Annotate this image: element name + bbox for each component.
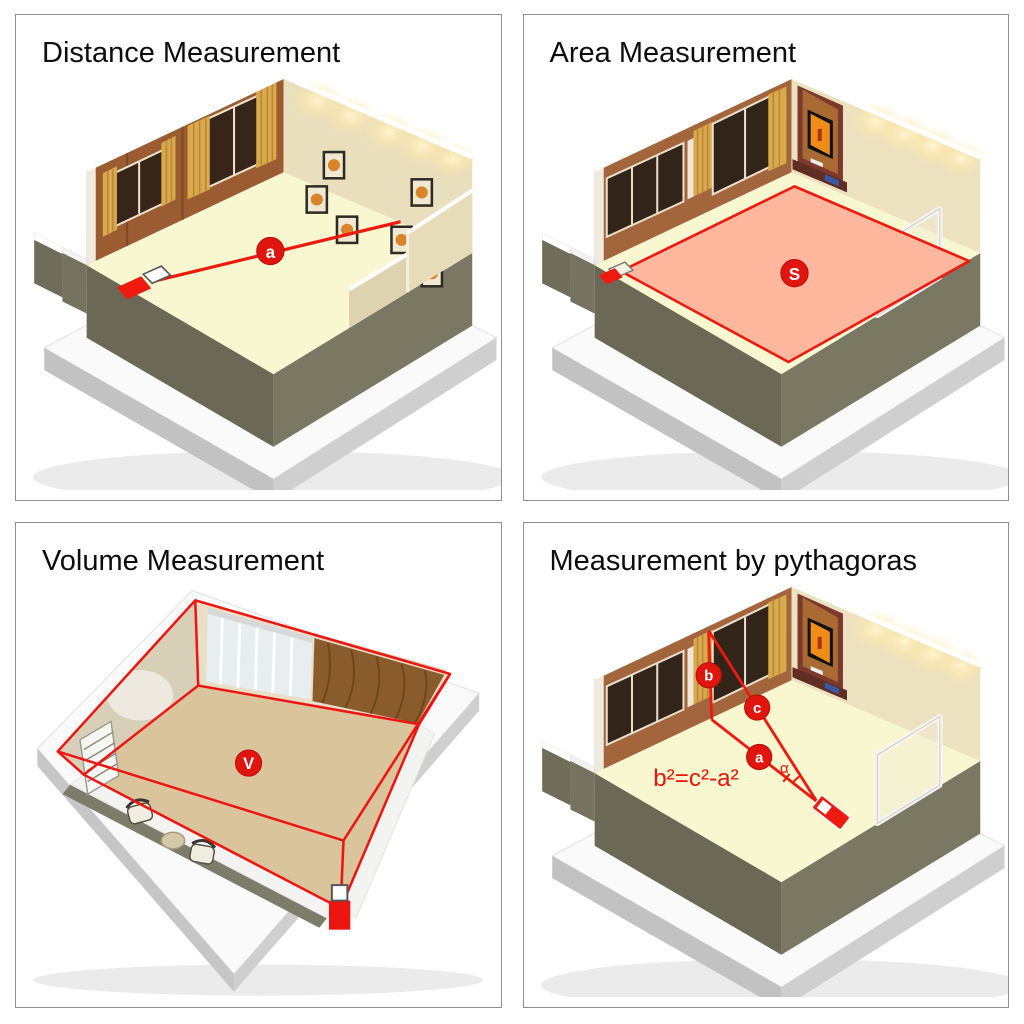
panel-title-distance: Distance Measurement [16, 15, 501, 71]
angle-label: α [780, 760, 789, 777]
curtain [768, 87, 786, 172]
formula-text: b²=c²-a² [653, 765, 738, 792]
panel-title-pythagoras: Measurement by pythagoras [524, 523, 1009, 579]
curtain [161, 136, 175, 207]
ottoman [161, 832, 184, 848]
curtain [256, 82, 276, 169]
panel-area: Area Measurement [523, 14, 1010, 501]
panel-volume: Volume Measurement [15, 522, 502, 1009]
panel-title-area: Area Measurement [524, 15, 1009, 71]
panel-title-volume: Volume Measurement [16, 523, 501, 579]
marker-letter-v: V [243, 755, 254, 773]
laser-device-icon [329, 885, 350, 930]
room-illustration-volume: V [16, 579, 501, 998]
panel-pythagoras: Measurement by pythagoras [523, 522, 1010, 1009]
marker-letter-s: S [788, 264, 799, 284]
room-illustration-pythagoras: b c a α b²=c²-a² [524, 579, 1009, 998]
marker-letter-c: c [752, 700, 760, 717]
feature-grid: Distance Measurement [0, 0, 1024, 1024]
curtain [103, 166, 117, 237]
marker-letter-a: a [754, 749, 763, 766]
marker-letter-a: a [266, 242, 276, 262]
curtain [768, 594, 786, 679]
shadow [34, 964, 484, 995]
marker-letter-b: b [704, 667, 713, 684]
room-illustration-distance: a [16, 71, 501, 490]
panel-distance: Distance Measurement [15, 14, 502, 501]
room-illustration-area: S [524, 71, 1009, 490]
